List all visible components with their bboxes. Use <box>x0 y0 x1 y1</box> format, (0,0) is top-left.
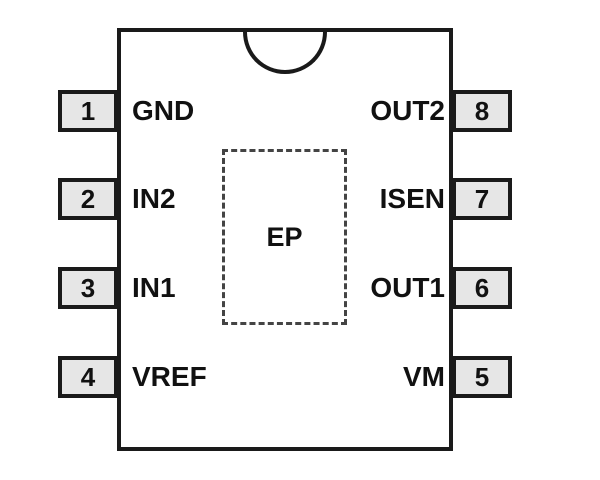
pin-pad-8: 8 <box>452 90 512 132</box>
pin-pad-2: 2 <box>58 178 118 220</box>
ic-pinout-diagram: 1 2 3 4 8 7 6 5 EP GND IN2 IN1 VREF OUT2… <box>0 0 600 480</box>
pin-number: 7 <box>456 182 508 216</box>
pin-pad-7: 7 <box>452 178 512 220</box>
pin-name-vref: VREF <box>132 362 207 392</box>
pin-pad-1: 1 <box>58 90 118 132</box>
pin-number: 2 <box>62 182 114 216</box>
pin-number: 3 <box>62 271 114 305</box>
pin-pad-3: 3 <box>58 267 118 309</box>
pin-pad-6: 6 <box>452 267 512 309</box>
pin-name-in1: IN1 <box>132 273 176 303</box>
pin-name-in2: IN2 <box>132 184 176 214</box>
pin-name-vm: VM <box>403 362 445 392</box>
pin-pad-5: 5 <box>452 356 512 398</box>
pin-number: 8 <box>456 94 508 128</box>
pin-pad-4: 4 <box>58 356 118 398</box>
exposed-pad-label: EP <box>266 222 302 253</box>
pin-number: 1 <box>62 94 114 128</box>
pin-number: 5 <box>456 360 508 394</box>
pin-name-gnd: GND <box>132 96 194 126</box>
pin-name-out2: OUT2 <box>370 96 445 126</box>
pin-name-out1: OUT1 <box>370 273 445 303</box>
exposed-pad: EP <box>222 149 347 325</box>
pin-number: 6 <box>456 271 508 305</box>
pin-name-isen: ISEN <box>380 184 445 214</box>
pin-number: 4 <box>62 360 114 394</box>
